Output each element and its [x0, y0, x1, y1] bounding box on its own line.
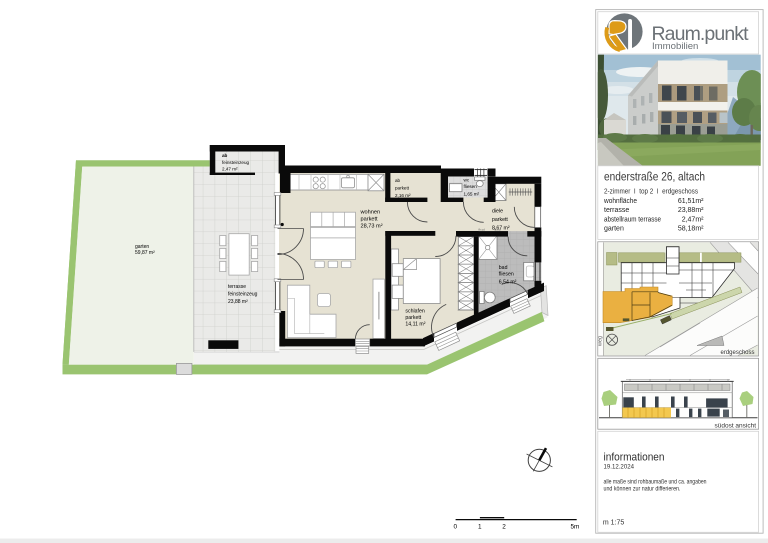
svg-text:1,65 m²: 1,65 m²: [464, 192, 480, 197]
svg-text:feinsteinzeug: feinsteinzeug: [228, 292, 258, 298]
svg-text:61,51m²: 61,51m²: [678, 198, 704, 205]
svg-text:0: 0: [454, 524, 458, 531]
svg-text:feinsteinzeug: feinsteinzeug: [222, 160, 250, 165]
svg-text:2,16 m²: 2,16 m²: [395, 193, 411, 198]
svg-text:terrasse: terrasse: [228, 284, 246, 290]
svg-text:terrasse: terrasse: [604, 207, 629, 214]
svg-text:und können zur natur differier: und können zur natur differieren.: [604, 487, 681, 493]
svg-text:südost ansicht: südost ansicht: [715, 423, 757, 430]
svg-text:weg: weg: [598, 336, 604, 347]
svg-text:fliesen: fliesen: [499, 272, 514, 278]
svg-text:parkett: parkett: [405, 315, 421, 321]
svg-text:m 1:75: m 1:75: [603, 520, 625, 527]
svg-text:2: 2: [502, 524, 506, 531]
svg-text:abstellraum terrasse: abstellraum terrasse: [604, 216, 661, 223]
svg-text:alle maße sind rohbaumaße und: alle maße sind rohbaumaße und ca. angabe…: [604, 479, 707, 485]
svg-text:fliesen: fliesen: [464, 184, 478, 189]
svg-text:ab: ab: [222, 153, 228, 158]
svg-text:wohnfläche: wohnfläche: [603, 198, 637, 205]
svg-text:23,88 m²: 23,88 m²: [228, 299, 248, 305]
svg-text:enderstraße 26, altach: enderstraße 26, altach: [604, 170, 705, 184]
svg-text:wc: wc: [464, 178, 470, 183]
svg-text:parkett: parkett: [361, 217, 379, 223]
svg-text:5m: 5m: [571, 524, 580, 531]
svg-text:fb.od: fb.od: [479, 228, 486, 232]
svg-text:23,88m²: 23,88m²: [678, 207, 704, 214]
svg-text:garten: garten: [604, 226, 624, 233]
svg-text:bad: bad: [499, 265, 508, 271]
svg-text:parkett: parkett: [492, 217, 508, 223]
svg-text:informationen: informationen: [604, 451, 665, 463]
svg-text:parkett: parkett: [395, 186, 410, 191]
svg-text:ab: ab: [395, 178, 401, 183]
svg-text:58,18m²: 58,18m²: [678, 226, 704, 233]
svg-text:6,54 m²: 6,54 m²: [499, 280, 517, 286]
svg-text:schlafen: schlafen: [405, 308, 424, 314]
svg-text:2-zimmer I top 2 I erdgesc: 2-zimmer I top 2 I erdgeschoss: [604, 189, 698, 196]
svg-text:2,47 m²: 2,47 m²: [222, 167, 238, 172]
svg-text:2,47m²: 2,47m²: [682, 216, 704, 223]
svg-text:diele: diele: [492, 208, 503, 214]
svg-text:Immobilien: Immobilien: [652, 41, 698, 52]
svg-text:19.12.2024: 19.12.2024: [604, 463, 635, 470]
svg-text:28,73 m²: 28,73 m²: [361, 224, 383, 230]
svg-text:59,87 m²: 59,87 m²: [135, 250, 155, 256]
svg-text:wohnen: wohnen: [360, 210, 381, 216]
svg-text:fb.od: fb.od: [494, 228, 501, 232]
svg-text:1: 1: [478, 524, 482, 531]
svg-text:14,11 m²: 14,11 m²: [405, 322, 425, 328]
svg-text:erdgeschoss: erdgeschoss: [721, 349, 755, 356]
